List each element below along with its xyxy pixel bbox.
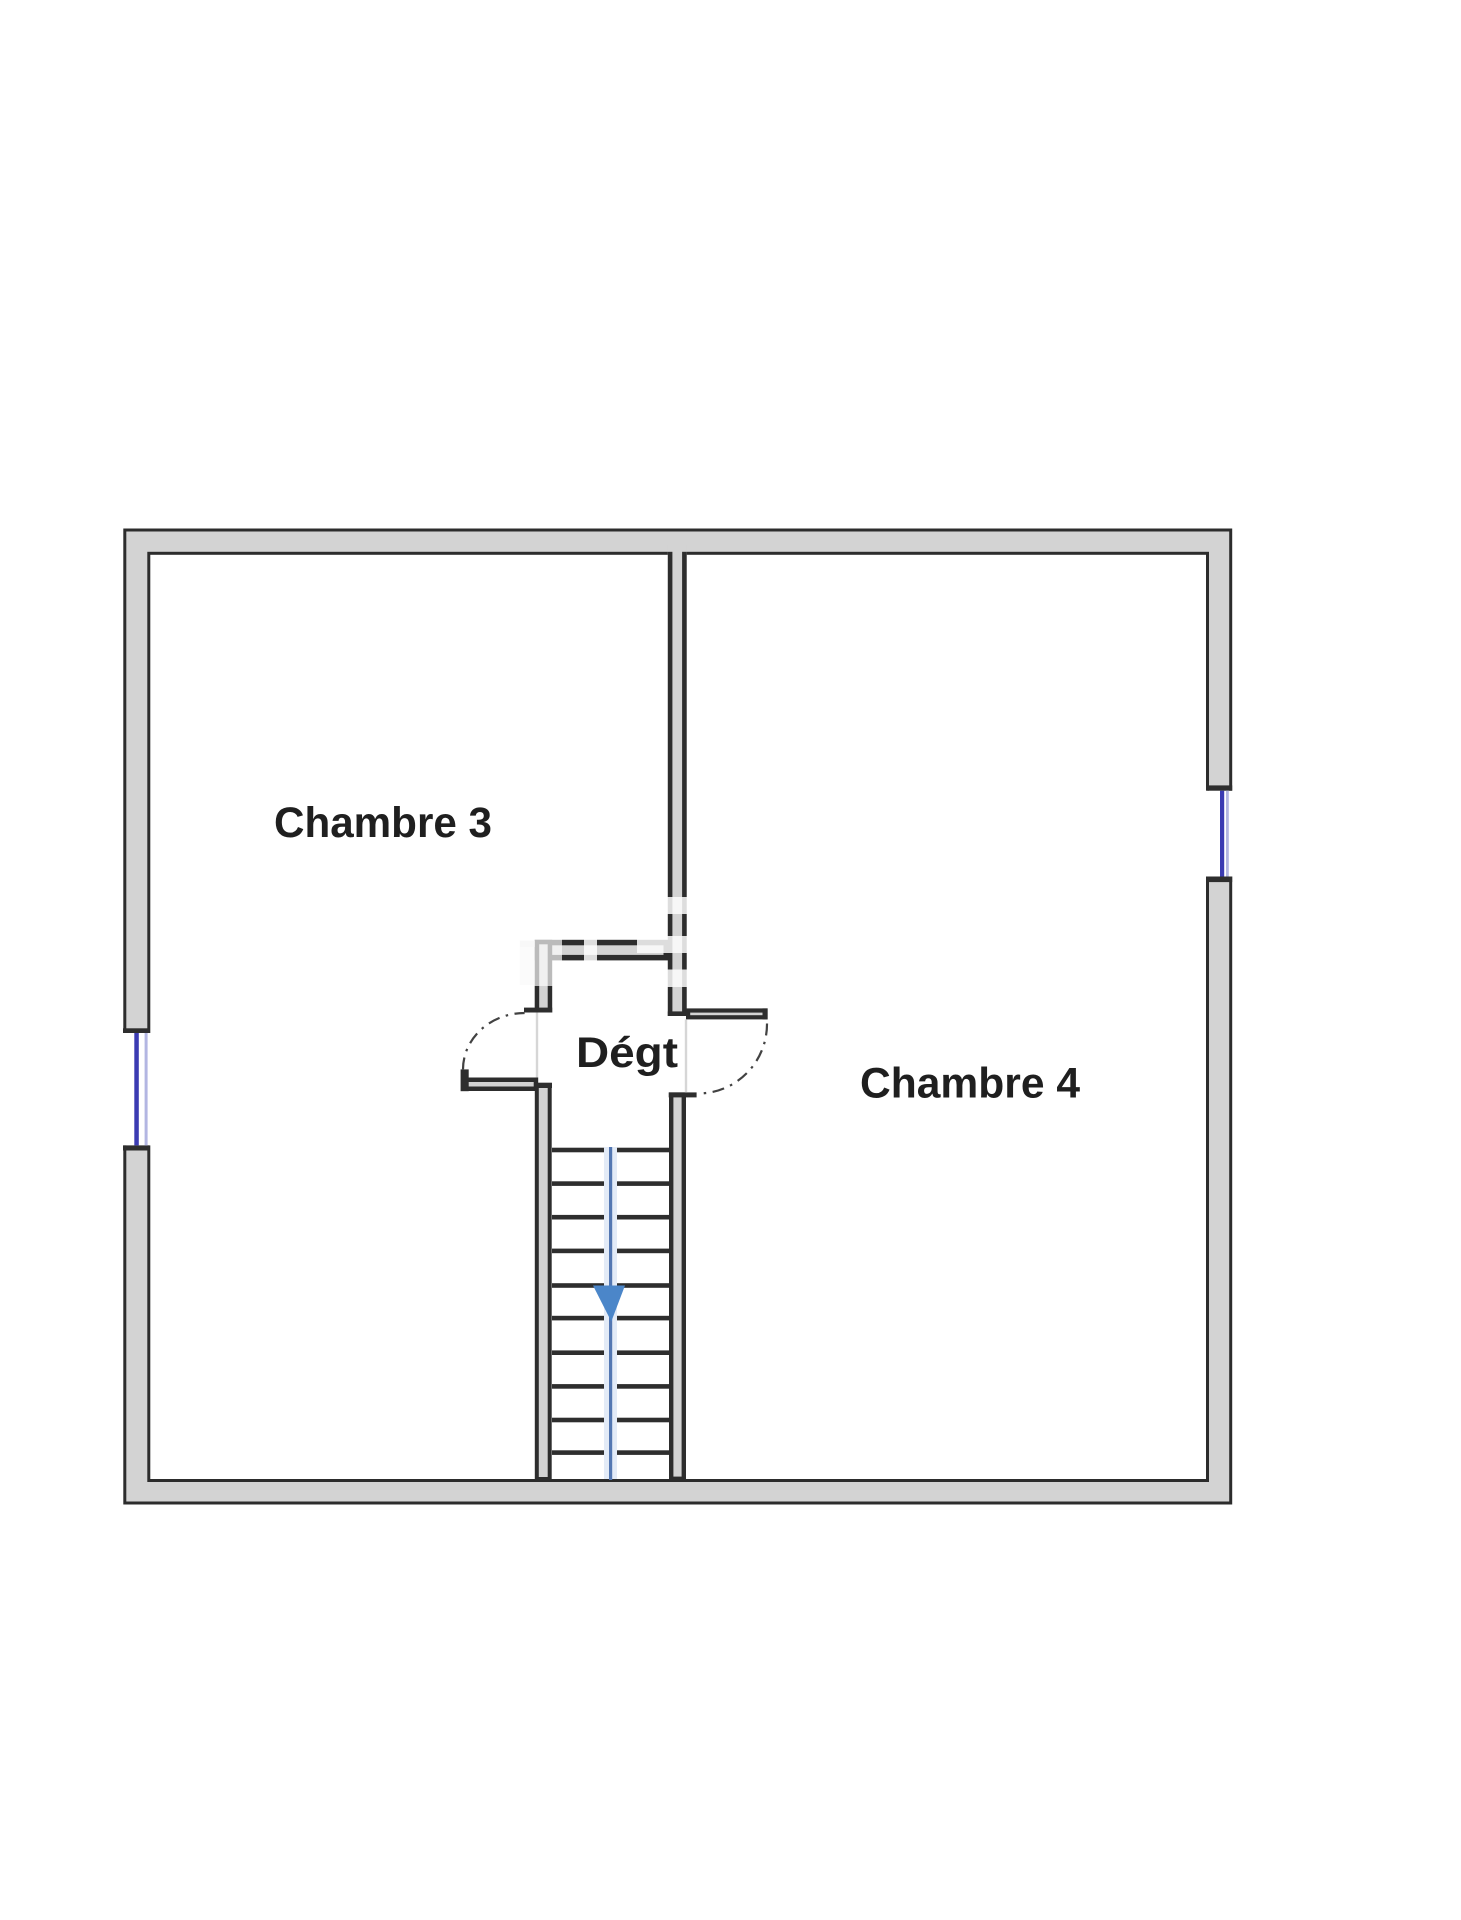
svg-text:Dégt: Dégt [576, 1029, 678, 1077]
svg-text:Chambre 4: Chambre 4 [860, 1059, 1080, 1107]
svg-text:Chambre 3: Chambre 3 [274, 799, 492, 847]
